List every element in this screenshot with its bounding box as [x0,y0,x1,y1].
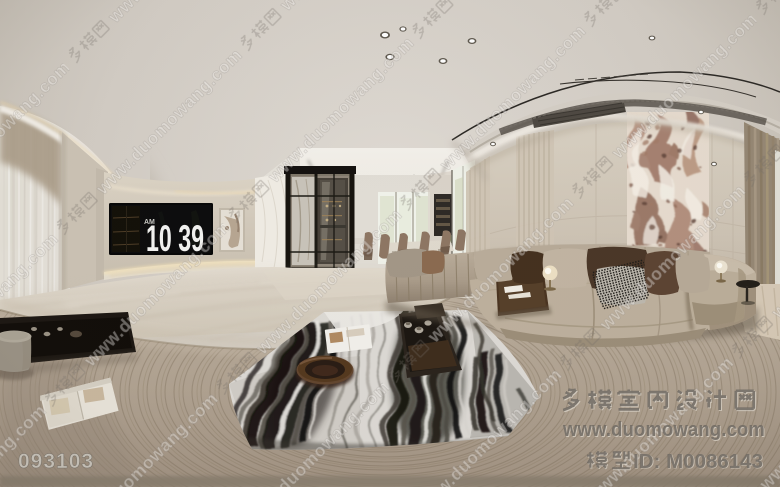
svg-text:ID: M0086143: ID: M0086143 [633,450,763,473]
svg-text:093103: 093103 [18,450,94,473]
svg-text:www.duomowang.com: www.duomowang.com [562,418,765,441]
